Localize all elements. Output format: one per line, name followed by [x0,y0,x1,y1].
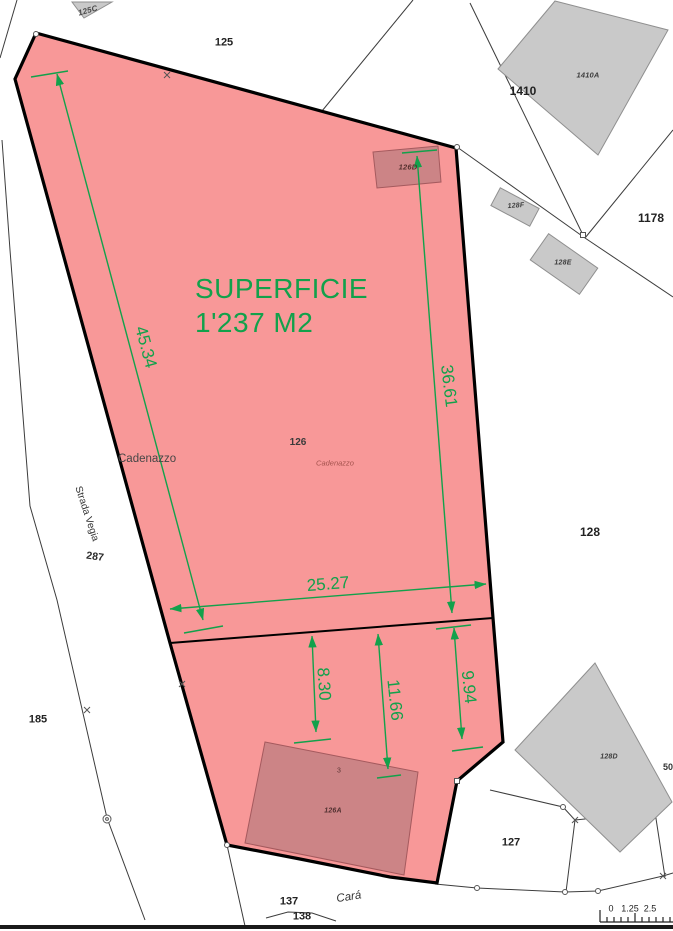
building-label-3: 3 [337,768,341,775]
scale-label-mid: 1.25 [621,905,639,914]
scale-label-end: 2.5 [644,905,657,914]
building-label-126a: 126A [324,808,342,815]
scale-label-zero: 0 [608,905,613,914]
place-label-cadenazzo-small: Cadenazzo [316,459,354,467]
building-label-126d: 126D [399,163,418,171]
parcel-label-1178: 1178 [638,212,664,224]
building-label-128e: 128E [554,260,571,267]
parcel-label-287: 287 [86,551,105,564]
parcel-label-138: 138 [293,912,311,923]
parcel-label-185: 185 [29,715,47,726]
building-label-50: 50 [663,763,673,772]
dim-label-11-66: 11.66 [384,679,405,722]
parcel-label-1410: 1410 [510,85,537,97]
parcel-label-127: 127 [502,838,520,849]
building-label-128d: 128D [600,754,618,761]
parcel-label-125: 125 [215,38,233,49]
parcel-label-128: 128 [580,526,600,538]
cadastral-plan: 125C 125 1410 1410A 126D 128F 1178 128E … [0,0,673,931]
dim-label-36-61: 36.61 [438,364,460,408]
dim-label-25-27: 25.27 [306,574,350,594]
building-label-128f: 128F [507,202,524,210]
surface-area-title: SUPERFICIE [195,275,368,303]
building-128d-shape [515,663,672,852]
place-label-cadenazzo: Cadenazzo [118,454,176,466]
parcel-label-126: 126 [290,438,307,448]
bottom-border [0,925,673,929]
dim-label-8-30: 8.30 [314,667,333,701]
parcel-label-137: 137 [280,897,298,908]
building-label-1410a: 1410A [576,71,599,79]
surface-area-value: 1'237 M2 [195,309,313,337]
dim-label-9-94: 9.94 [459,670,479,705]
